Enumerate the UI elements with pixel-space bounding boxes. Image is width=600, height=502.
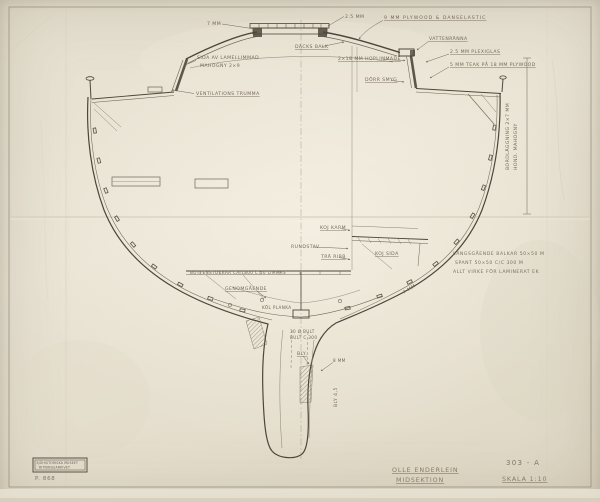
dimension-line [523,58,531,214]
label-berth-side: KOJ SIDA [375,251,399,257]
label-deck-beam: DÄCKS BALK [295,43,329,50]
label-roof-thickness: 7 MM [207,21,221,27]
label-lead: BLY. [297,351,307,357]
label-ballast-weight: BLY 4,5 [333,387,339,407]
label-keel-bolt-2: BULT C 300 [290,335,317,340]
label-roof-plywood: 9 MM PLYWOOD & DANSELASTIC [384,15,486,21]
drawing-scale: SKALA 1:10 [502,476,547,483]
label-hatch-glass: 2.5 MM [345,14,364,20]
label-door-jamb: DÖRR SMYG [365,76,397,83]
label-through-bolted: GENOMGÅENDE [225,285,267,292]
label-cabin-side-1: SIDA AV LAMELLIMMAD [197,55,259,61]
midship-section-drawing: 7 MM 2.5 MM 9 MM PLYWOOD & DANSELASTIC V… [0,0,600,502]
hull-frames [93,125,496,312]
drawing-number: 303 - A [506,459,540,467]
label-laminated-side: 2×18 MM HOPLIMMADE [338,56,401,62]
label-cabin-side-2: MAHOGNY 2×9 [200,63,240,69]
archive-stamp: SJÖHISTORISKA MUSEET RITNINGSARKIVET P. … [33,458,87,482]
label-planking-2: HOND. MAHOGNY [513,123,519,170]
archive-number: P. 868 [35,476,55,482]
label-deck-teak: 5 MM TEAK PÅ 18 MM PLYWOOD [450,61,536,68]
label-keel-bolt-1: 30 Ø BULT [290,329,315,334]
label-berth-rail: KOJ KARM [320,225,346,231]
interior-structure [112,177,428,318]
designer-name: OLLE ENDERLEIN [392,467,459,474]
label-keel-8mm: 8 MM [333,358,346,363]
label-ventilation-duct: VENTILATIONS TRUMMA [196,91,260,97]
note-line-2: SPANT 50×50 C/C 300 M [455,260,523,266]
drawing-title: MIDSEKTION [396,477,444,484]
label-round-bar: RUNDSTAV [291,244,320,250]
stamp-line-1: SJÖHISTORISKA MUSEET [37,460,79,465]
label-water-channel: VATTENRÄNNA [429,35,468,42]
drawing-sheet: 7 MM 2.5 MM 9 MM PLYWOOD & DANSELASTIC V… [0,0,600,502]
label-plexiglas: 2.5 MM PLEXIGLAS [450,49,500,55]
label-planking-1: BORDLÄGGNING 2×7 MM [504,103,511,170]
label-wood-ribs: TRÄ RIBB [320,253,346,260]
note-line-1: LÄNGSGÅENDE BALKAR 50×50 M [453,250,545,257]
stamp-line-2: RITNINGSARKIVET [39,466,70,470]
label-floor-timbers: BOTTENSTOCKAR CA 1800 C 50 LIMMAS [190,270,286,275]
title-block: OLLE ENDERLEIN MIDSEKTION 303 - A SKALA … [392,459,547,484]
label-keel-plank: KÖL PLANKA [262,305,291,310]
note-line-3: ALLT VIRKE FÖR LAMINERAT EK [453,268,540,275]
